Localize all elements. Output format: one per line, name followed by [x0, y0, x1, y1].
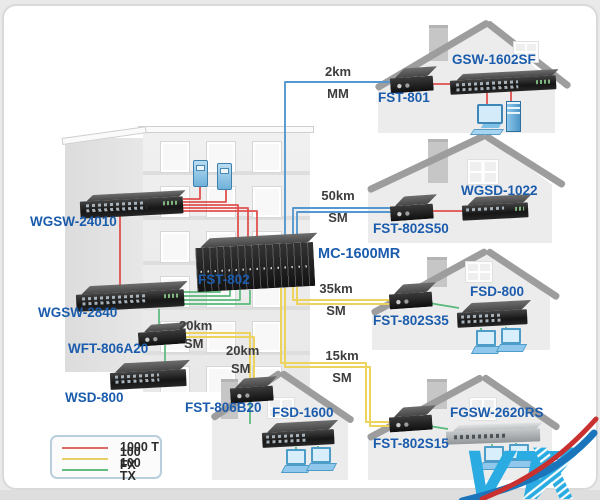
- building-window: [161, 142, 189, 172]
- device-fst-802s50: [389, 195, 434, 222]
- desktop-monitor: [477, 104, 503, 124]
- label-fst-801: FST-801: [378, 90, 430, 105]
- vtx-watermark-logo: VT X: [420, 413, 600, 500]
- device-wgsd-1022: [461, 194, 528, 220]
- link-label-20km-b: 20kmSM: [226, 344, 259, 377]
- link-label-15km: 15kmSM: [320, 349, 364, 386]
- building-window: [253, 142, 281, 172]
- label-wsd-800: WSD-800: [65, 390, 124, 405]
- device-wsd-800: [109, 360, 186, 390]
- label-wgsd-1022: WGSD-1022: [461, 183, 538, 198]
- device-fsd-1600: [261, 420, 334, 448]
- label-fst-802s50: FST-802S50: [373, 221, 449, 236]
- legend: 1000 T 100 FX 100 TX: [50, 435, 162, 479]
- label-fsd-1600: FSD-1600: [272, 405, 334, 420]
- network-diagram: WGSW-24010 WGSW-2840 WFT-806A20 WSD-800 …: [0, 0, 600, 500]
- laptop: [308, 447, 335, 473]
- building-window: [207, 187, 235, 217]
- legend-line-100tx: [62, 469, 108, 471]
- label-mc-1600mr: MC-1600MR: [318, 246, 400, 262]
- desktop-keyboard: [470, 129, 504, 135]
- building-window: [253, 187, 281, 217]
- house-window: [466, 262, 492, 282]
- building-side-wall: [65, 138, 143, 372]
- laptop: [473, 330, 500, 356]
- link-label-2km: 2kmMM: [316, 65, 360, 102]
- label-gsw-1602sf: GSW-1602SF: [452, 52, 536, 67]
- link-label-50km: 50kmSM: [316, 189, 360, 226]
- label-wgsw-2840: WGSW-2840: [38, 305, 117, 320]
- label-wft-806a20: WFT-806A20: [68, 341, 148, 356]
- legend-line-1000t: [62, 447, 108, 449]
- device-fsd-800: [456, 300, 527, 328]
- desktop-monitor-base: [481, 124, 501, 128]
- legend-line-100fx: [62, 458, 108, 460]
- label-fst-802s35: FST-802S35: [373, 313, 449, 328]
- laptop: [283, 449, 310, 475]
- legend-row-100tx: 100 TX: [62, 464, 160, 475]
- laptop: [498, 328, 525, 354]
- desktop-tower: [506, 101, 521, 132]
- wall-mounted-unit: [217, 163, 232, 190]
- legend-label-100tx: 100 TX: [120, 457, 160, 482]
- label-fsd-800: FSD-800: [470, 284, 524, 299]
- link-label-35km: 35kmSM: [314, 282, 358, 319]
- building-cornice: [138, 126, 314, 133]
- building-window: [161, 232, 189, 262]
- label-fst-802: FST-802: [198, 272, 250, 287]
- house-window: [468, 160, 498, 184]
- label-wgsw-24010: WGSW-24010: [30, 214, 117, 229]
- label-fst-806b20: FST-806B20: [185, 400, 262, 415]
- device-fst-802s35: [388, 283, 433, 310]
- link-label-20km-a: 20kmSM: [179, 319, 212, 352]
- wall-mounted-unit: [193, 160, 208, 187]
